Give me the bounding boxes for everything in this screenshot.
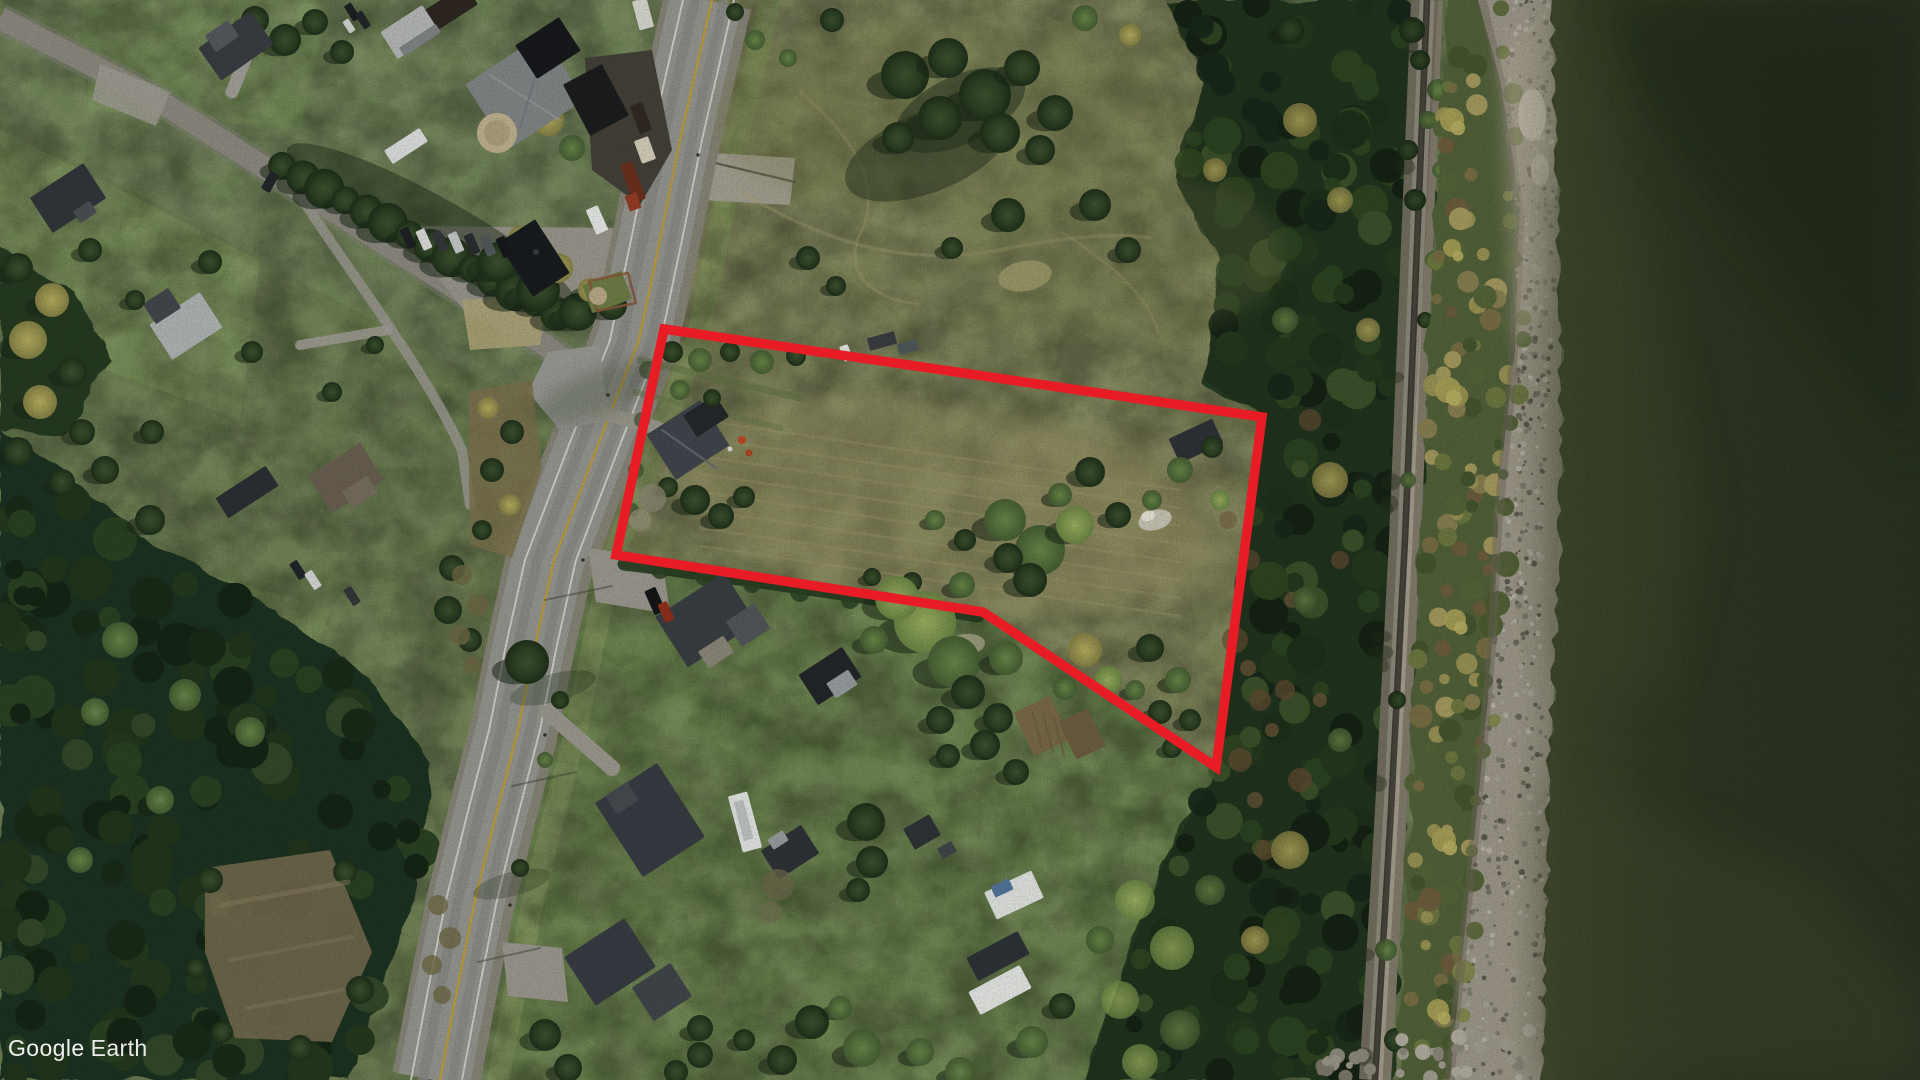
svg-text:GoogleEarth: GoogleEarth xyxy=(8,1035,148,1061)
